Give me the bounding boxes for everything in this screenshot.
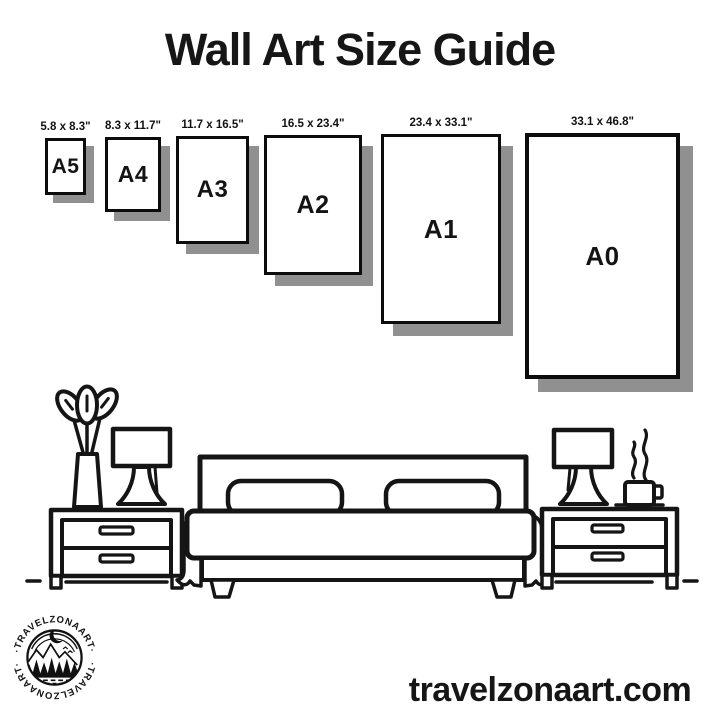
frame-a4: 8.3 x 11.7" A4 bbox=[105, 137, 161, 212]
frame-a2-size: 16.5 x 23.4" bbox=[281, 118, 344, 130]
frame-a1-label: A1 bbox=[424, 214, 458, 245]
table-lamp-left-icon bbox=[113, 429, 170, 504]
page-title: Wall Art Size Guide bbox=[0, 24, 720, 76]
frame-a5: 5.8 x 8.3" A5 bbox=[45, 138, 86, 195]
bedroom-illustration bbox=[0, 378, 720, 603]
frame-a0-size: 33.1 x 46.8" bbox=[571, 116, 634, 128]
frame-a1-size: 23.4 x 33.1" bbox=[409, 117, 472, 129]
frame-a0: 33.1 x 46.8" A0 bbox=[525, 133, 680, 379]
frame-a3-label: A3 bbox=[197, 176, 229, 204]
double-bed-icon bbox=[177, 457, 549, 597]
nightstand-right-icon bbox=[542, 509, 677, 588]
steam-icon bbox=[644, 430, 647, 480]
frame-a0-label: A0 bbox=[585, 241, 619, 272]
frame-a4-size: 8.3 x 11.7" bbox=[105, 120, 161, 132]
frame-a4-label: A4 bbox=[118, 161, 148, 188]
brand-logo-stamp: ·TRAVELZONAART· ·TRAVELZONAART· bbox=[7, 610, 102, 705]
wall-art-size-guide-poster: Wall Art Size Guide 5.8 x 8.3" A5 8.3 x … bbox=[0, 0, 720, 720]
frame-a3-size: 11.7 x 16.5" bbox=[181, 119, 243, 131]
website-url: travelzonaart.com bbox=[390, 671, 710, 710]
coffee-cup-icon bbox=[616, 430, 663, 505]
nightstand-left-icon bbox=[51, 510, 182, 588]
frame-a3: 11.7 x 16.5" A3 bbox=[176, 136, 249, 244]
frame-a2-label: A2 bbox=[297, 191, 330, 220]
frame-a1: 23.4 x 33.1" A1 bbox=[381, 134, 501, 324]
frame-a5-size: 5.8 x 8.3" bbox=[40, 121, 90, 133]
steam-icon bbox=[633, 442, 636, 478]
table-lamp-right-icon bbox=[554, 430, 612, 504]
frame-a2: 16.5 x 23.4" A2 bbox=[264, 135, 362, 275]
frame-a5-label: A5 bbox=[52, 155, 80, 179]
